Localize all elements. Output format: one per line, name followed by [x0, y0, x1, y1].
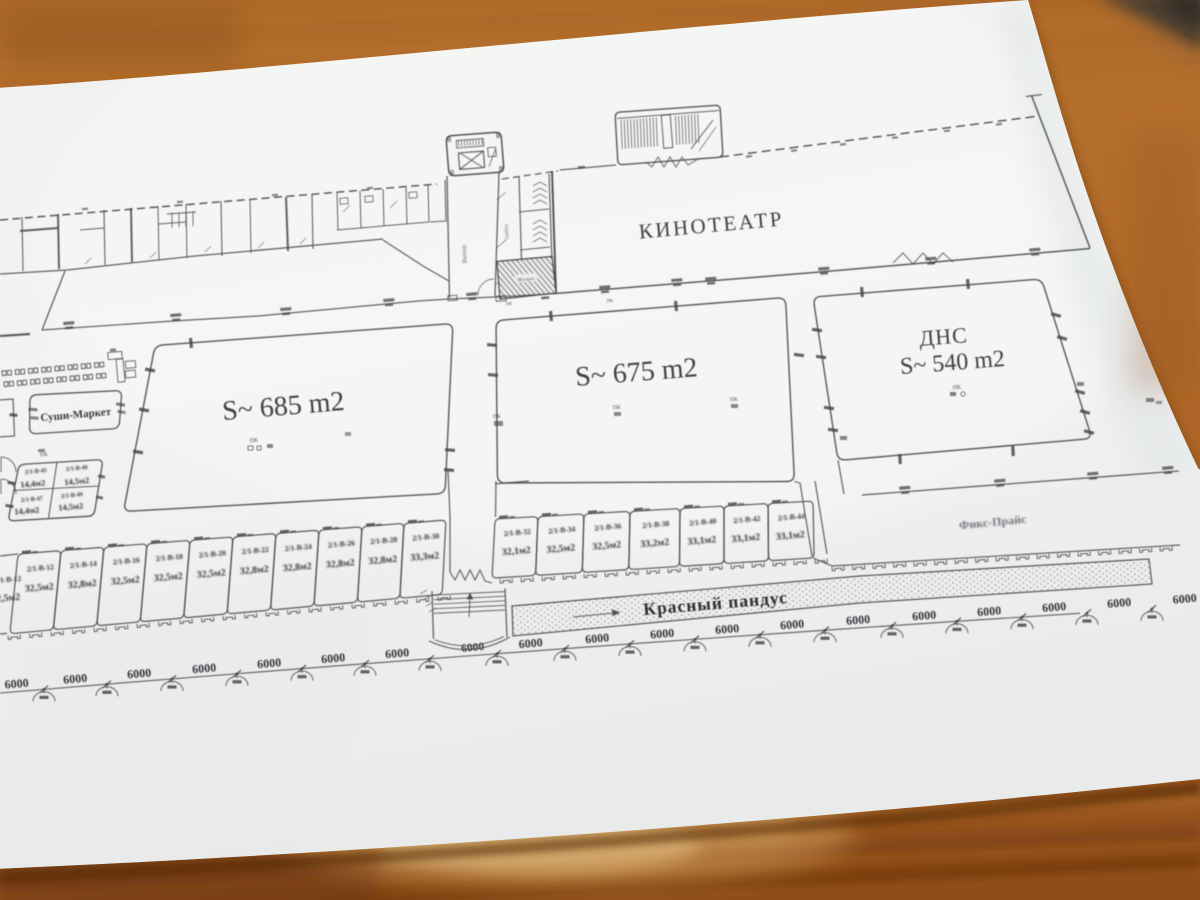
svg-text:6000: 6000 [1172, 591, 1197, 607]
svg-text:ПК: ПК [40, 452, 48, 459]
svg-text:Выход: Выход [460, 244, 468, 263]
svg-text:ПК: ПК [493, 414, 501, 421]
svg-text:ПК: ПК [730, 397, 738, 404]
svg-text:6000: 6000 [977, 603, 1002, 619]
svg-text:6000: 6000 [846, 612, 871, 628]
svg-text:6000: 6000 [518, 635, 543, 651]
svg-text:6000: 6000 [1042, 599, 1067, 615]
svg-text:6000: 6000 [650, 626, 675, 642]
svg-text:6000: 6000 [912, 607, 937, 623]
svg-text:6000: 6000 [780, 616, 805, 632]
svg-text:6000: 6000 [585, 630, 610, 646]
svg-text:ПК: ПК [250, 438, 260, 445]
svg-text:6000: 6000 [321, 650, 346, 666]
svg-text:6000: 6000 [257, 655, 282, 671]
svg-text:6000: 6000 [127, 665, 152, 681]
svg-text:ПК: ПК [613, 405, 621, 412]
svg-text:ПК: ПК [953, 385, 963, 392]
svg-text:6000: 6000 [461, 641, 485, 655]
svg-text:6000: 6000 [192, 660, 217, 676]
svg-text:6000: 6000 [4, 676, 29, 692]
svg-text:6000: 6000 [385, 645, 410, 661]
svg-text:6000: 6000 [715, 621, 740, 637]
svg-text:ДНС: ДНС [918, 322, 968, 351]
svg-text:6000: 6000 [1107, 595, 1132, 611]
svg-text:6000: 6000 [63, 671, 88, 687]
